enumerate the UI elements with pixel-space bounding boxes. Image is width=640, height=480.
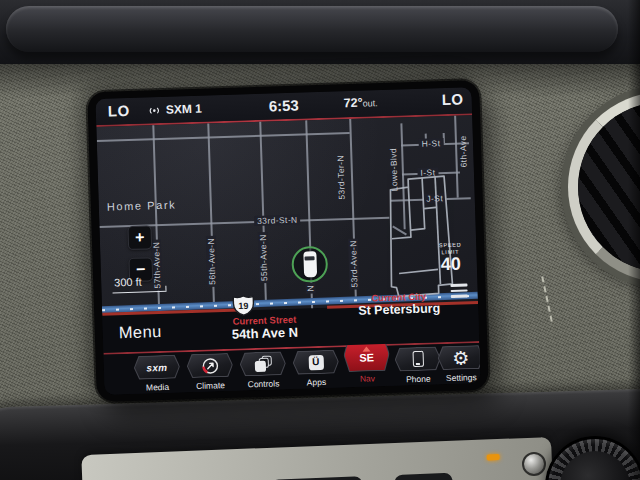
gear-icon: ⚙ [452,348,470,368]
speed-limit-sign: SPEED LIMIT 40 [428,241,473,274]
street-label-54th-ave-n-partial: N [305,283,315,294]
uconnect-screen: LO SXM 1 6:53 72°out. LO [95,87,480,395]
us-route-19-shield: 19 [232,294,256,317]
dock-item-apps[interactable]: Ü Apps [287,347,344,388]
menu-button[interactable]: Menu [119,322,162,342]
sxm-logo: sxm [146,361,167,373]
map-options-menu-icon[interactable] [450,283,467,298]
navigation-map[interactable]: 57th-Ave-N 56th-Ave-N 55th-Ave-N N 53rd-… [96,115,478,315]
outside-temperature: 72°out. [343,95,377,110]
grab-handle [6,6,618,52]
current-street-value: 54th Ave N [203,324,327,343]
car-dashboard-scene: LO SXM 1 6:53 72°out. LO [0,0,640,480]
layered-cards-icon [254,356,271,373]
vehicle-marker [291,246,328,283]
dock-label-controls: Controls [235,378,291,390]
dock-label-media: Media [129,381,185,393]
street-label-53rd-ave-n: 53rd-Ave-N [348,238,360,290]
street-label-53rd-ter-n: 53rd-Ter-N [335,153,347,202]
route-shield-number: 19 [238,301,248,311]
dock-label-climate: Climate [182,380,238,392]
dock-item-media[interactable]: sxm Media [128,352,185,393]
outside-temp-unit: out. [362,98,377,108]
broadcast-antenna-icon [148,104,161,115]
dock-item-controls[interactable]: Controls [234,349,291,390]
dock-label-nav: Nav [339,373,395,385]
outside-temp-value: 72° [343,96,362,111]
area-label-home-park: Home Park [107,198,177,212]
current-city-block: Current City St Petersburg [358,290,441,318]
amber-indicator-led [487,454,500,460]
dock-item-climate[interactable]: Climate [181,351,238,392]
current-city-value: St Petersburg [358,301,440,318]
audio-source: SXM 1 [148,102,202,118]
compass-heading: SE [359,352,374,363]
round-hard-button[interactable] [522,452,546,476]
speed-limit-value: 40 [429,254,474,274]
status-right-badge: LO [442,90,464,108]
street-label-33rd-st-n: 33rd-St-N [254,215,301,226]
dock-label-settings: Settings [433,372,480,384]
climate-hard-button[interactable] [394,473,453,480]
street-label-h-st: H-St [419,138,444,149]
compass-pointer-icon [362,346,370,351]
climate-dial-icon [200,356,220,376]
map-scale-label: 300 ft [114,276,142,289]
status-left-badge: LO [108,102,130,120]
audio-source-label: SXM 1 [166,102,202,117]
climate-hard-button[interactable] [270,476,363,480]
clock: 6:53 [268,97,299,115]
street-line [97,132,350,141]
right-edge-shadow [628,0,640,480]
dock-item-nav-active[interactable]: SE Nav [338,346,395,385]
zoom-in-button[interactable]: + [127,225,152,250]
vehicle-icon [303,251,317,277]
street-label-6th-ave: 6th-Ave [458,133,469,169]
infotainment-screen-bezel: LO SXM 1 6:53 72°out. LO [87,80,489,402]
dock-item-settings[interactable]: ⚙ Settings [432,343,480,384]
dock-label-apps: Apps [288,376,344,388]
street-label-55th-ave-n: 55th-Ave-N [258,232,270,283]
street-label-56th-ave-n: 56th-Ave-N [206,236,218,287]
uconnect-apps-icon: Ü [308,354,323,369]
current-street-block: Current Street 54th Ave N [202,313,327,343]
smartphone-icon [412,351,423,367]
